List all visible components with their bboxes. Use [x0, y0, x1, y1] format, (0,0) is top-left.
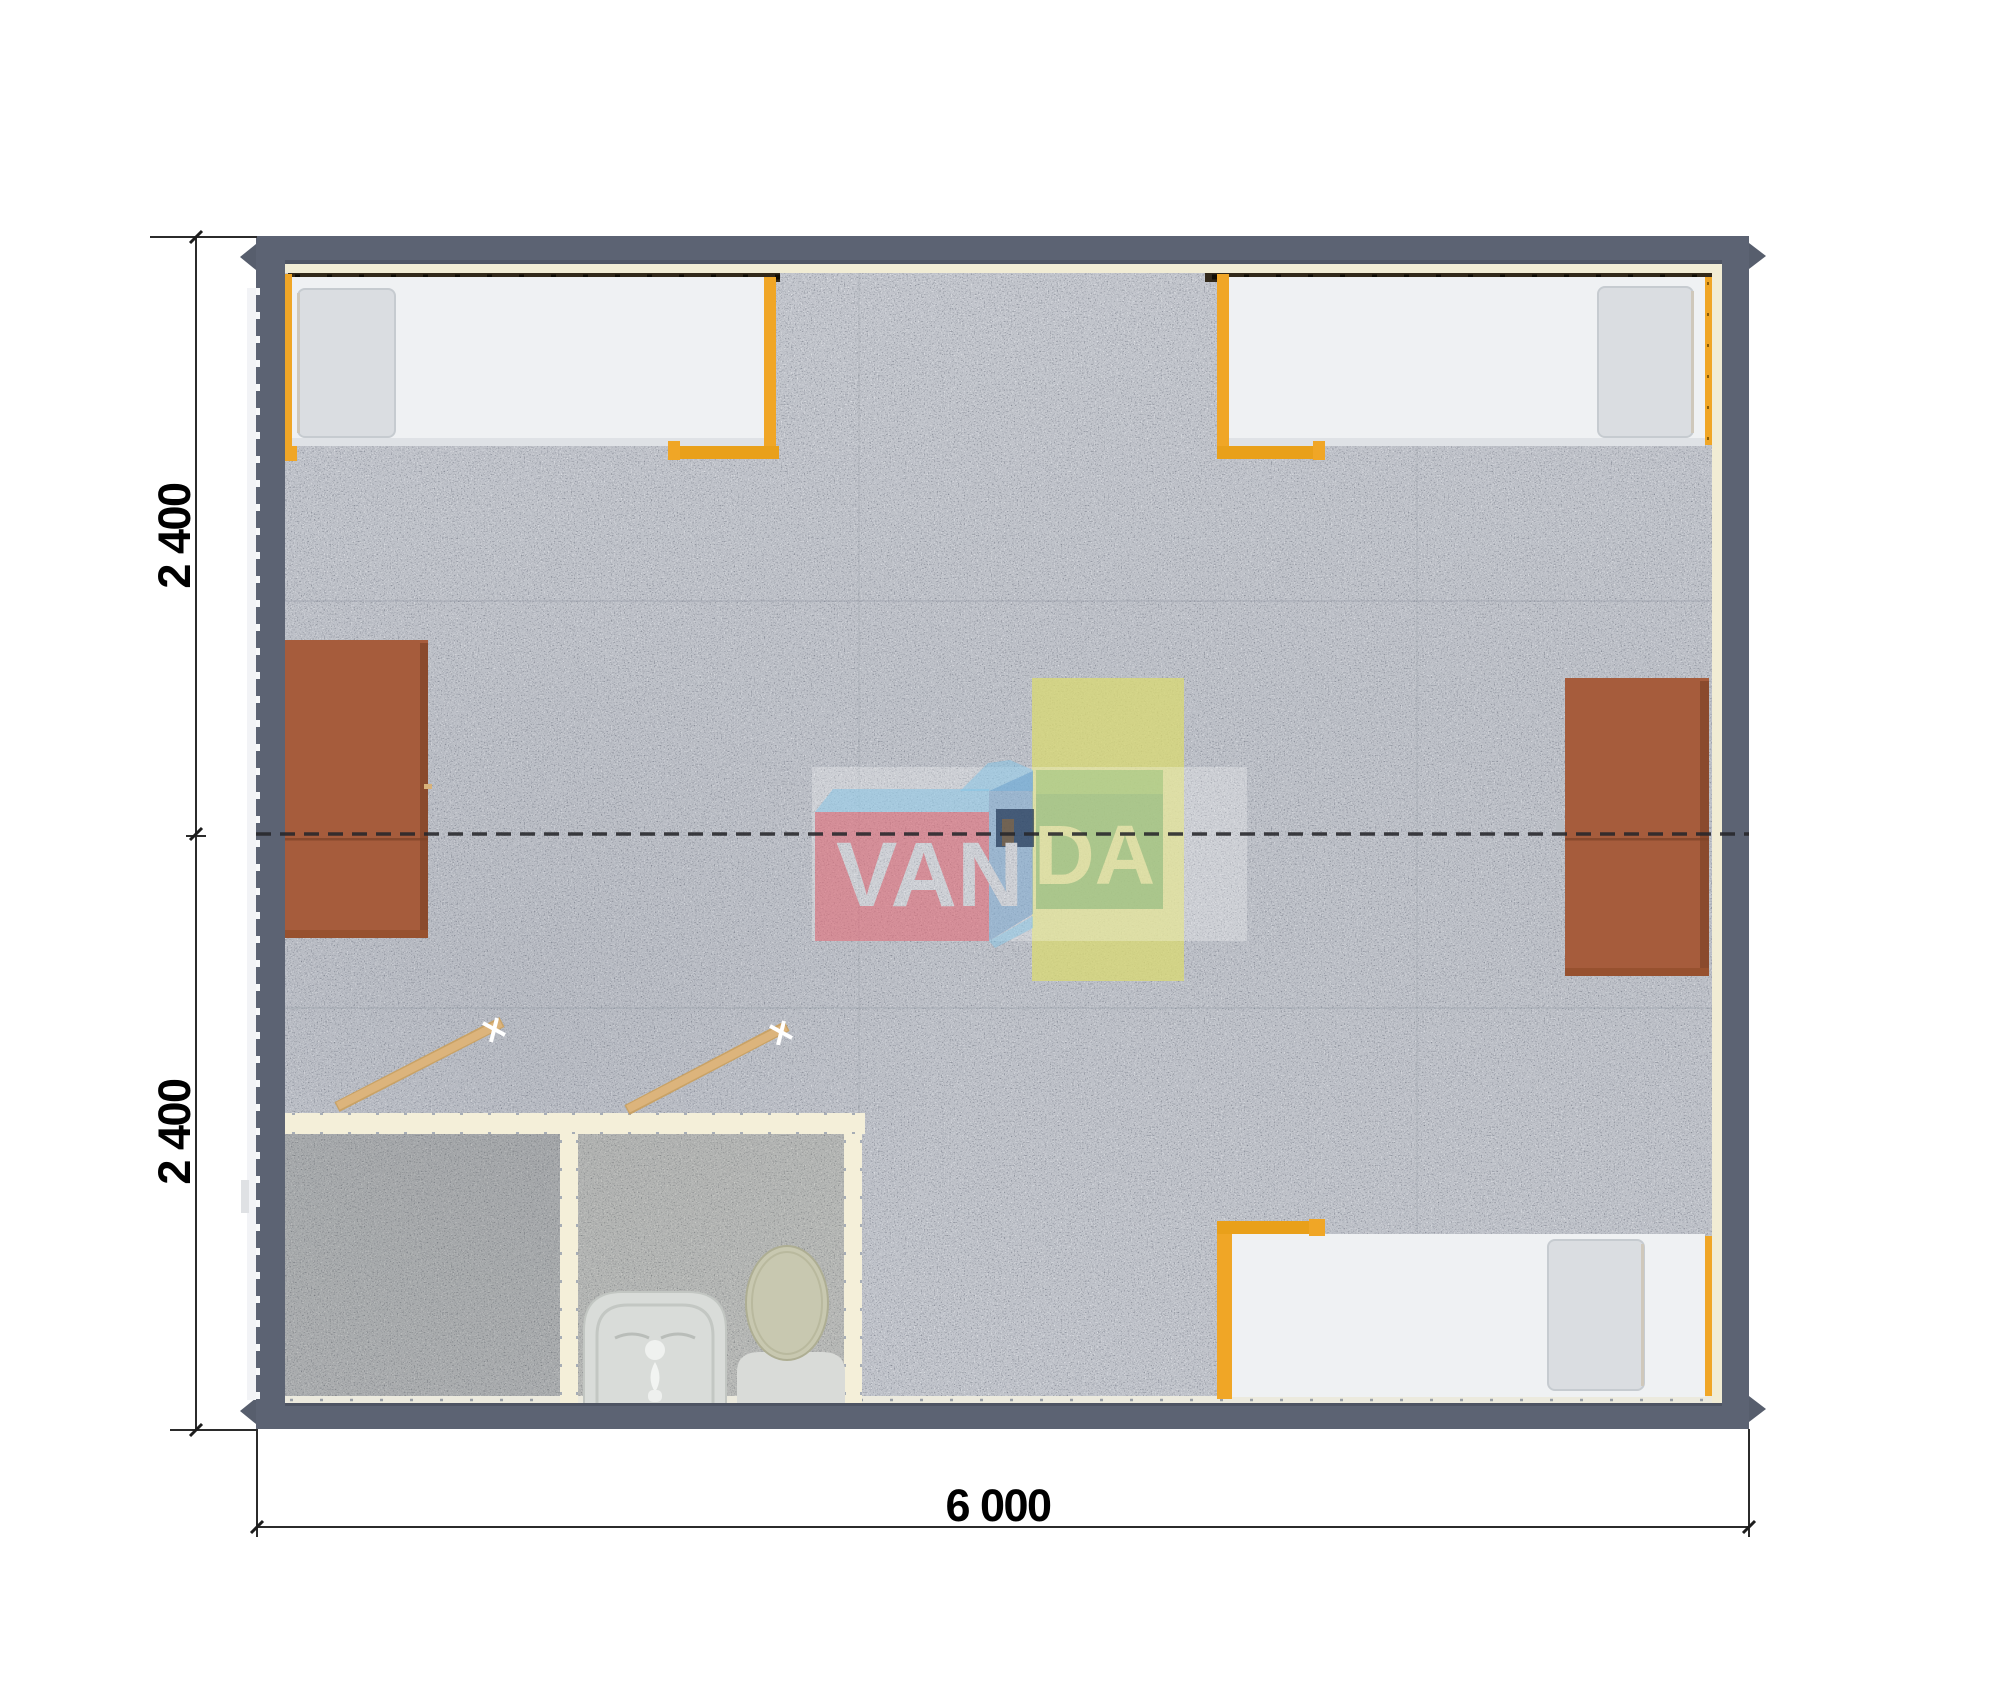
svg-text:2 400: 2 400 [149, 1079, 200, 1185]
svg-text:6 000: 6 000 [945, 1480, 1051, 1531]
svg-text:2 400: 2 400 [149, 483, 200, 589]
